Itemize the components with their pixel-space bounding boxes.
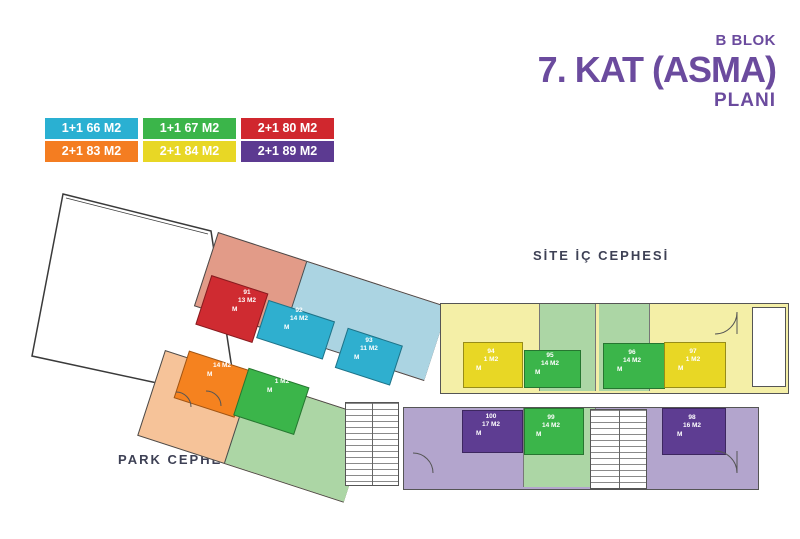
plan-suffix: PLANI (538, 91, 776, 111)
legend-item-2+1-89: 2+1 89 M2 (241, 141, 334, 162)
unit-94-label: 94 1 M2 M (466, 348, 516, 373)
floor-plan-page: B BLOK 7. KAT (ASMA) PLANI 1+1 66 M2 1+1… (0, 0, 800, 539)
unit-90-label: 90 14 M2 M (197, 354, 247, 379)
unit-92-label: 92 14 M2 M (274, 307, 324, 332)
legend-item-2+1-84: 2+1 84 M2 (143, 141, 236, 162)
legend-item-2+1-80: 2+1 80 M2 (241, 118, 334, 139)
wing-band-lower (137, 350, 371, 503)
unit-95-label: 95 14 M2 M (525, 352, 575, 377)
legend-item-1+1-67: 1+1 67 M2 (143, 118, 236, 139)
legend-item-2+1-83: 2+1 83 M2 (45, 141, 138, 162)
unit-100-label: 100 17 M2 M (466, 413, 516, 438)
unit-89-label: 89 1 M2 M (257, 370, 307, 395)
block-label: B BLOK (538, 33, 776, 49)
unit-97-label: 97 1 M2 M (668, 348, 718, 373)
stairwell-west (345, 402, 399, 486)
legend: 1+1 66 M2 1+1 67 M2 2+1 80 M2 2+1 83 M2 … (45, 118, 345, 162)
page-title: B BLOK 7. KAT (ASMA) PLANI (538, 33, 776, 110)
unit-93-label: 93 11 M2 M (344, 337, 394, 362)
unit-98-label: 98 16 M2 M (667, 414, 717, 439)
unit-96-label: 96 14 M2 M (607, 349, 657, 374)
legend-item-1+1-66: 1+1 66 M2 (45, 118, 138, 139)
unit-99-label: 99 14 M2 M (526, 414, 576, 439)
stairwell-east (590, 409, 647, 489)
floor-title: 7. KAT (ASMA) (538, 51, 776, 89)
site-facade-label: SİTE İÇ CEPHESİ (533, 248, 669, 263)
unit-91-label: 91 13 M2 M (222, 289, 272, 314)
end-room (752, 307, 786, 387)
